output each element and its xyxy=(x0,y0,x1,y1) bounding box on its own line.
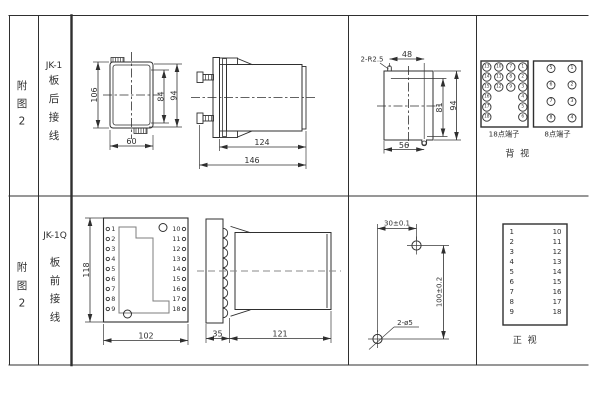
terminal-number: 4 xyxy=(571,115,574,121)
dim-label-60: 60 xyxy=(126,137,136,146)
dim-label-30: 30±0.1 xyxy=(384,220,410,228)
terminal-number: 2 xyxy=(521,74,524,80)
terminal-label: 15 xyxy=(172,275,180,283)
front-terminal-map: 1 2 3 4 5 6 7 8 9 10 11 12 13 14 15 16 1… xyxy=(503,224,567,346)
terminal-bumps xyxy=(223,228,228,317)
wiring-label-char: 板 xyxy=(50,256,61,269)
dim-label-35: 35 xyxy=(212,330,222,339)
row2-header: 附 图 2 JK-1Q 板 前 接 线 xyxy=(17,231,67,324)
model-label-jk1q: JK-1Q xyxy=(42,231,67,241)
terminal-number: 17 xyxy=(484,104,490,110)
terminal-label: 3 xyxy=(510,248,514,256)
dim-label-118: 118 xyxy=(82,262,91,277)
fig-label-char: 附 xyxy=(17,261,28,274)
terminal-label: 10 xyxy=(553,228,562,236)
terminal-label: 11 xyxy=(172,235,180,243)
terminal-block-18pt: 13 10 7 1 14 11 8 2 15 12 9 3 16 4 17 5 … xyxy=(481,61,528,139)
row1-header: 附 图 2 JK-1 板 后 接 线 xyxy=(17,61,63,142)
terminal-number: 7 xyxy=(550,98,553,104)
terminal-label: 12 xyxy=(172,245,180,253)
wiring-label-char: 接 xyxy=(49,111,60,124)
caption-rear-view: 背 视 xyxy=(505,148,530,160)
wiring-label-char: 线 xyxy=(50,311,61,324)
fig-label-char: 2 xyxy=(19,116,26,128)
dim-label-124: 124 xyxy=(254,138,269,147)
terminal-number: 5 xyxy=(521,104,524,110)
terminal-number: 3 xyxy=(521,84,524,90)
terminal-label: 2 xyxy=(510,238,514,246)
terminal-label: 5 xyxy=(111,265,115,273)
terminal-number: 13 xyxy=(484,64,490,70)
front-terminals-left: 1 2 3 4 5 6 7 8 9 xyxy=(106,225,115,313)
terminal-label: 3 xyxy=(111,245,115,253)
dim-label-121: 121 xyxy=(272,330,287,339)
terminal-number: 12 xyxy=(496,84,502,90)
terminal-label: 10 xyxy=(172,225,180,233)
terminal-number: 6 xyxy=(550,82,553,88)
terminal-label: 7 xyxy=(111,285,115,293)
dim-label-84: 84 xyxy=(157,91,166,101)
dim-label-106: 106 xyxy=(90,87,99,102)
dim-label-56: 56 xyxy=(399,141,409,150)
terminal-label: 6 xyxy=(111,275,115,283)
terminal-label: 7 xyxy=(510,288,514,296)
terminal-number: 11 xyxy=(496,74,502,80)
dim-label-102: 102 xyxy=(138,332,153,341)
terminal-label: 18 xyxy=(553,308,562,316)
jk1q-side-view: 35 121 xyxy=(197,219,341,343)
terminal-number: 4 xyxy=(521,94,524,100)
terminal-block-18pt-label: 18点端子 xyxy=(489,130,520,139)
drawing-sheet: 附 图 2 JK-1 板 后 接 线 附 图 2 JK-1Q 板 前 接 线 xyxy=(0,0,600,400)
jk1-side-view: 124 146 xyxy=(191,58,315,170)
terminal-number: 2 xyxy=(571,82,574,88)
dim-label-146: 146 xyxy=(244,156,259,165)
fig-label-char: 附 xyxy=(17,79,28,92)
terminal-label: 8 xyxy=(111,295,115,303)
terminal-number: 5 xyxy=(550,65,553,71)
terminal-label: 13 xyxy=(553,258,562,266)
fig-label-char: 图 xyxy=(17,98,28,110)
wiring-label-char: 前 xyxy=(50,274,61,287)
terminal-label: 16 xyxy=(172,285,180,293)
mounting-tab-bottom xyxy=(134,128,147,134)
model-label-jk1: JK-1 xyxy=(45,61,63,71)
jk1q-drilling-plan: 30±0.1 100±0.2 2-ø5 xyxy=(368,220,449,350)
terminal-label: 11 xyxy=(553,238,562,246)
terminal-number: 9 xyxy=(509,84,512,90)
technical-drawing: 附 图 2 JK-1 板 后 接 线 附 图 2 JK-1Q 板 前 接 线 xyxy=(0,0,600,400)
terminal-label: 14 xyxy=(553,268,562,276)
terminal-number: 1 xyxy=(521,64,524,70)
terminal-label: 6 xyxy=(510,278,515,286)
jk1q-front-view: 118 1 2 3 4 5 6 7 8 9 10 11 12 13 14 15 … xyxy=(82,218,188,345)
terminal-label: 14 xyxy=(172,265,180,273)
terminal-label: 17 xyxy=(553,298,562,306)
terminal-label: 9 xyxy=(111,305,115,313)
terminal-number: 14 xyxy=(484,74,490,80)
terminal-number: 7 xyxy=(509,64,512,70)
terminal-number: 8 xyxy=(509,74,512,80)
terminal-number: 1 xyxy=(571,65,574,71)
terminal-number: 3 xyxy=(571,98,574,104)
dim-label-100: 100±0.2 xyxy=(436,277,444,307)
dim-label-81: 81 xyxy=(435,102,444,112)
terminal-number: 15 xyxy=(484,84,490,90)
dim-label-48: 48 xyxy=(402,50,412,59)
terminal-label: 9 xyxy=(510,308,514,316)
mounting-tab-top xyxy=(111,58,124,63)
fig-label-char: 图 xyxy=(17,280,28,292)
terminal-label: 2 xyxy=(111,235,115,243)
terminal-label: 1 xyxy=(111,225,115,233)
terminal-number: 10 xyxy=(496,64,502,70)
terminal-label: 8 xyxy=(510,298,514,306)
terminal-label: 15 xyxy=(553,278,562,286)
terminal-number: 18 xyxy=(484,114,490,120)
jk1-panel-cutout: 2-R2.5 48 56 81 94 xyxy=(361,50,461,154)
inner-step-outline xyxy=(119,227,169,313)
mounting-hole xyxy=(124,310,132,318)
dim-label-94: 94 xyxy=(170,90,179,100)
terminal-block-8pt-label: 8点端子 xyxy=(544,130,570,139)
terminal-screw xyxy=(197,72,214,83)
front-terminals-right: 10 11 12 13 14 15 16 17 18 xyxy=(172,225,185,313)
terminal-label: 5 xyxy=(510,268,514,276)
terminal-label: 13 xyxy=(172,255,180,263)
terminal-number: 6 xyxy=(521,114,524,120)
terminal-label: 16 xyxy=(553,288,562,296)
mounting-hole xyxy=(159,224,167,232)
terminal-label: 4 xyxy=(510,258,515,266)
cutout-note-2-r2.5: 2-R2.5 xyxy=(361,56,384,64)
wiring-label-char: 板 xyxy=(49,74,60,87)
terminal-block-8pt: 5 1 6 2 7 3 8 4 8点端子 xyxy=(534,61,583,139)
terminal-label: 1 xyxy=(510,228,514,236)
drill-note-2-d5: 2-ø5 xyxy=(397,319,413,327)
terminal-label: 18 xyxy=(172,305,180,313)
terminal-number: 8 xyxy=(550,115,553,121)
terminal-label: 4 xyxy=(111,255,115,263)
dim-label-94-cutout: 94 xyxy=(449,100,458,110)
fig-label-char: 2 xyxy=(19,298,26,310)
terminal-number: 16 xyxy=(484,94,490,100)
jk1-front-view: 106 84 94 60 xyxy=(90,52,182,150)
wiring-label-char: 线 xyxy=(49,129,60,142)
terminal-label: 17 xyxy=(172,295,180,303)
terminal-label: 12 xyxy=(553,248,562,256)
wiring-label-char: 接 xyxy=(50,292,61,305)
wiring-label-char: 后 xyxy=(49,93,60,105)
terminal-screw xyxy=(197,113,214,124)
caption-front-view: 正 视 xyxy=(513,334,538,346)
